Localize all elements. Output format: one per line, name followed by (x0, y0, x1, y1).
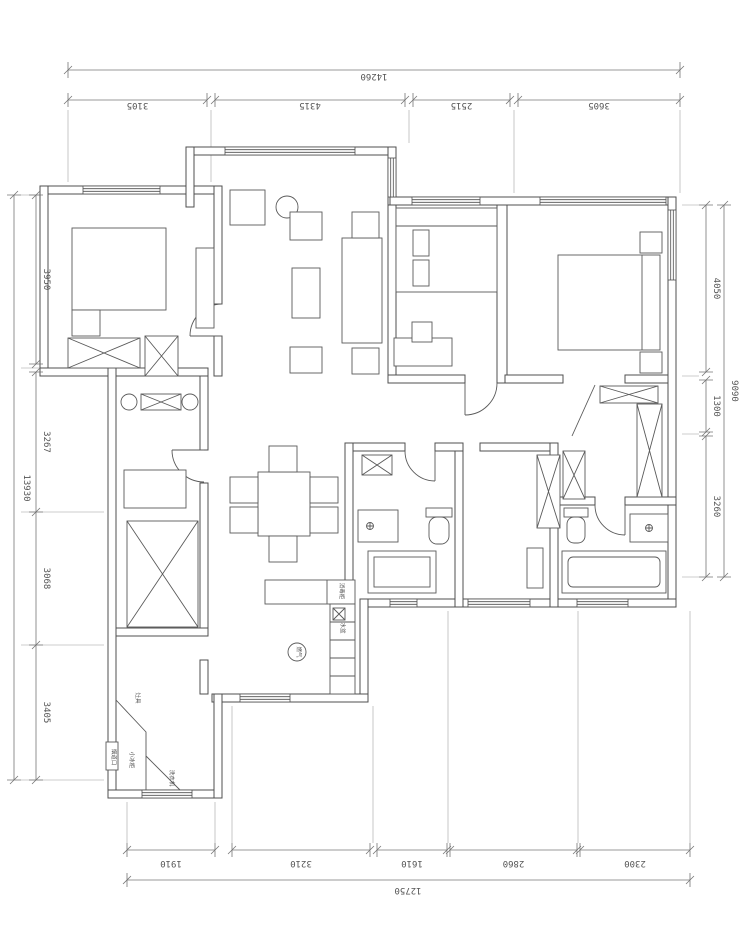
chair (269, 536, 297, 562)
bed (558, 255, 660, 350)
fridge-label: 小冰柜 (128, 752, 136, 769)
nightstand (72, 310, 100, 336)
window (577, 599, 628, 607)
door-bath-1 (405, 451, 435, 481)
cabinet (196, 248, 214, 328)
dim-left-1: 3950 (41, 269, 51, 291)
window (468, 599, 530, 607)
bathtub (562, 551, 666, 593)
dim-left-overall: 13930 (21, 474, 31, 501)
dim-bottom-3: 1610 (401, 858, 423, 868)
window (540, 197, 666, 205)
chair (230, 477, 258, 503)
chair (230, 507, 258, 533)
dim-left-4: 3405 (41, 702, 51, 724)
armchair (290, 347, 322, 373)
dim-bottom-2: 3210 (290, 858, 312, 868)
dim-top-2: 4315 (299, 100, 321, 110)
bed (72, 228, 166, 310)
armchair (290, 212, 322, 240)
dim-bottom-5: 2300 (624, 858, 646, 868)
chair (269, 446, 297, 472)
window (83, 186, 160, 194)
dim-left-3: 3068 (41, 568, 51, 590)
toilet (564, 508, 588, 543)
dim-bottom-1: 1910 (160, 858, 182, 868)
window (240, 694, 290, 702)
flue-label: 烟道口 (110, 749, 118, 766)
bath-1-fixtures (358, 508, 452, 593)
dim-top-1: 3105 (127, 100, 149, 110)
dim-bottom: 1910 3210 1610 2860 2300 12750 (123, 843, 694, 895)
window (390, 599, 417, 607)
floor-plan: 灶具 小冰柜 烟道口 洗衣机 消毒柜 水盆 燃气 14260 3105 4315… (0, 0, 740, 935)
nightstand (640, 232, 662, 253)
faucet (646, 525, 653, 532)
coffee-table (292, 268, 320, 318)
dim-top-3: 2515 (451, 100, 473, 110)
bedroom-left-furniture (68, 228, 214, 376)
dim-right-overall: 9090 (729, 380, 739, 402)
sofa-end-table (352, 212, 379, 238)
vanity (358, 510, 398, 542)
shower (368, 551, 436, 593)
door-bedroom-2 (465, 383, 497, 415)
dining-table (258, 472, 310, 536)
floor-plan-canvas: 灶具 小冰柜 烟道口 洗衣机 消毒柜 水盆 燃气 14260 3105 4315… (0, 0, 740, 935)
window (142, 790, 192, 798)
stove-label: 灶具 (134, 692, 142, 704)
washer-label: 洗衣机 (168, 770, 176, 787)
dim-bottom-4: 2860 (503, 858, 525, 868)
gas-label: 燃气 (295, 646, 303, 658)
chair (412, 322, 432, 342)
utility-room-furniture (121, 394, 198, 627)
pillow (413, 260, 429, 286)
pillow (413, 230, 429, 256)
dim-top-overall: 14260 (360, 71, 387, 81)
counter (124, 470, 186, 508)
sink-label: 水盆 (339, 622, 347, 634)
chair (310, 507, 338, 533)
dining-furniture (230, 446, 338, 562)
toilet (426, 508, 452, 544)
chair (310, 477, 338, 503)
sofa (342, 238, 382, 343)
sofa-end-table (352, 348, 379, 374)
dim-right-3: 3260 (711, 496, 721, 518)
dim-right-2: 1300 (711, 395, 721, 417)
basin (182, 394, 198, 410)
dim-right-1: 4050 (711, 278, 721, 300)
window (388, 158, 396, 197)
side-table (230, 190, 265, 225)
door-bath-master (595, 505, 625, 535)
hall-cabinet (527, 548, 543, 588)
window (412, 197, 480, 205)
dim-top: 14260 3105 4315 2515 3605 (64, 62, 684, 110)
dim-bottom-overall: 12750 (394, 885, 421, 895)
closet (600, 386, 662, 497)
dim-left: 13930 3950 3267 3068 3405 (7, 191, 51, 784)
nightstand (640, 352, 662, 373)
master-bath-fixtures (562, 508, 668, 593)
window (225, 147, 355, 155)
dim-left-2: 3267 (41, 431, 51, 453)
dim-right: 4050 1300 3260 9090 (699, 201, 739, 581)
bedroom-2-furniture (394, 208, 497, 366)
dim-top-4: 3605 (588, 100, 610, 110)
door-bedroom-master (572, 385, 595, 436)
window (668, 210, 676, 280)
basin (121, 394, 137, 410)
bed (396, 208, 497, 292)
living-room-furniture (230, 190, 382, 374)
sterilizer-label: 消毒柜 (338, 583, 346, 600)
faucet (367, 523, 374, 530)
